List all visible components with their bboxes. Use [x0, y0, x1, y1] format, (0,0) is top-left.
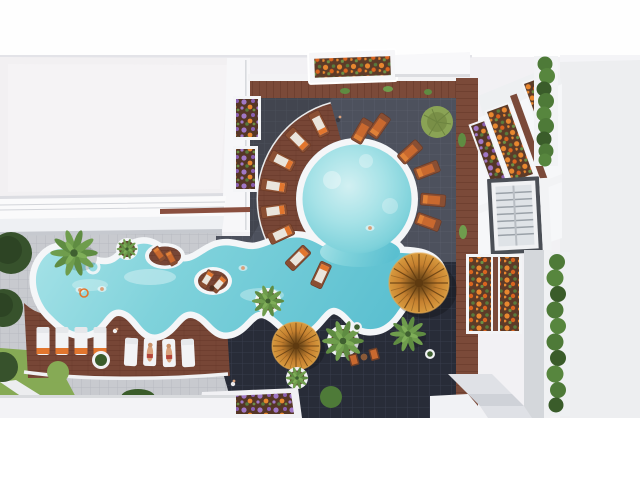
swimmer — [366, 225, 375, 231]
water-highlight — [323, 171, 341, 189]
hedge-column-upper — [534, 56, 558, 167]
aerial-pool-render — [0, 0, 640, 480]
right-background — [560, 0, 640, 480]
water-highlight — [382, 198, 398, 214]
water-highlight — [359, 154, 373, 168]
top-white-band — [0, 0, 640, 57]
planted-pot-island — [116, 238, 138, 260]
swimmer — [98, 286, 107, 292]
thatch-parasol-large — [389, 253, 449, 313]
left-apartment-building — [0, 57, 250, 240]
round-planter-plant — [95, 354, 107, 366]
curb-plant — [458, 133, 466, 147]
lounger-island-b — [194, 267, 232, 295]
roof-inner-panel — [8, 64, 228, 192]
wood-deck-strip-top — [250, 81, 456, 98]
walkway-edge — [0, 395, 236, 398]
water-highlight — [124, 269, 176, 285]
facade-window — [487, 176, 552, 255]
walkway-left — [0, 398, 236, 420]
bottom-white-band — [0, 418, 640, 480]
hedge-bush — [320, 386, 342, 408]
scene-canvas — [0, 0, 640, 480]
curb-plant — [383, 86, 393, 92]
concrete-path — [524, 250, 544, 418]
curb-plant — [340, 88, 350, 94]
thatch-parasol-small — [272, 322, 320, 370]
curb-plant — [459, 225, 467, 239]
swimmer — [239, 265, 248, 271]
grass-circle — [47, 361, 69, 383]
wall-seam — [245, 60, 247, 230]
olive-bush — [421, 106, 453, 138]
curb-plant — [424, 89, 432, 95]
lounger-island-a — [145, 243, 185, 269]
side-table — [209, 285, 214, 290]
top-flower-planter — [308, 49, 397, 84]
